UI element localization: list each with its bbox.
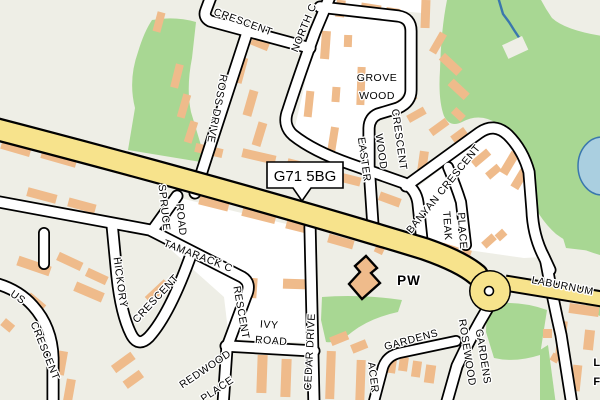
street-label-grove-wood-1: GROVE [357,72,397,84]
roundabout [469,270,511,312]
street-label-easter-3: CRESCENT [389,108,409,171]
street-label-redwood-2: PLACE [199,374,236,400]
street-label-teak-2: PLACE [455,212,470,250]
street-label-ivy-2: ROAD [255,334,288,348]
roundabout-island [485,287,494,296]
street-label-partial-1: L [593,357,600,369]
street-label-grove-wood-2: WOOD [359,90,395,102]
map-canvas[interactable]: CRESCENT NORTH C ROSS DRIVE GROVE WOOD E… [0,0,600,400]
place-of-worship-label: PW [397,273,421,288]
place-of-worship-building [349,256,380,299]
postcode-label: G71 5BG [274,168,337,185]
street-label-partial-2: F [593,376,600,388]
street-label-teak-1: TEAK [440,211,454,241]
street-label-ivy-1: IVY [260,318,279,331]
map-svg: CRESCENT NORTH C ROSS DRIVE GROVE WOOD E… [0,0,600,400]
